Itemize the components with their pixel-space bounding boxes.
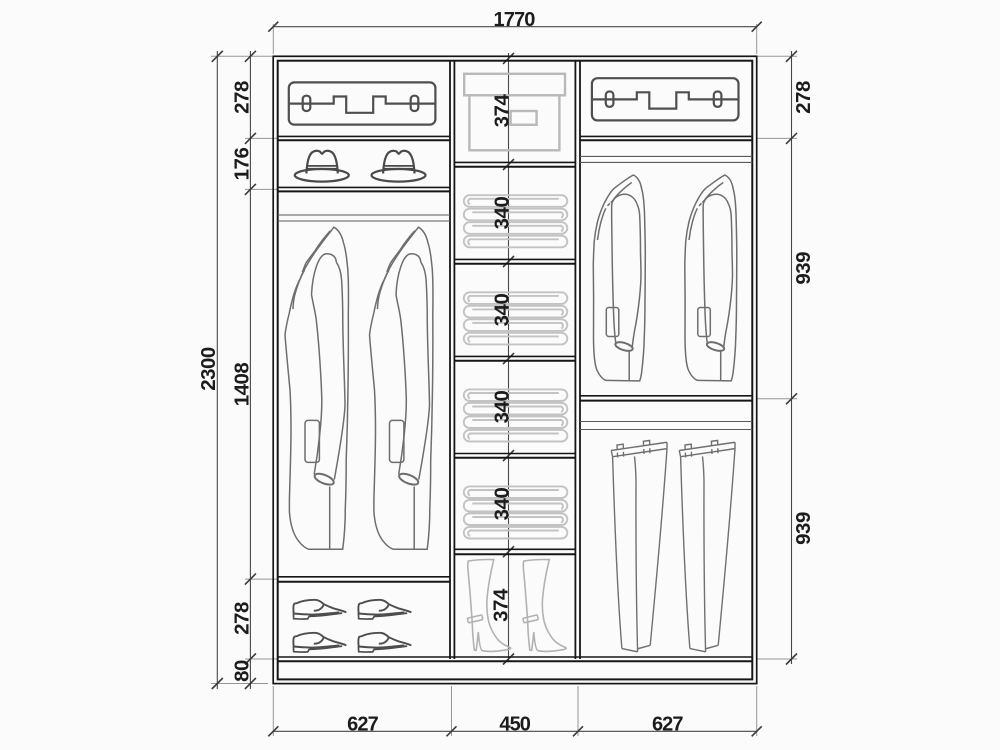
svg-text:278: 278 [231, 602, 254, 635]
svg-text:627: 627 [652, 713, 683, 735]
svg-text:2300: 2300 [197, 347, 220, 391]
svg-text:627: 627 [347, 713, 378, 735]
svg-text:340: 340 [490, 391, 513, 424]
svg-text:939: 939 [792, 252, 815, 285]
svg-text:340: 340 [490, 197, 513, 230]
svg-text:340: 340 [490, 294, 513, 327]
svg-text:1770: 1770 [494, 9, 536, 31]
svg-text:340: 340 [490, 488, 513, 521]
svg-text:1408: 1408 [231, 363, 254, 407]
svg-text:939: 939 [792, 512, 815, 545]
svg-text:450: 450 [499, 713, 530, 735]
svg-text:278: 278 [792, 81, 815, 114]
svg-text:374: 374 [490, 588, 513, 622]
svg-text:278: 278 [231, 81, 254, 114]
svg-text:80: 80 [231, 660, 254, 682]
svg-text:374: 374 [490, 94, 513, 128]
svg-text:176: 176 [231, 148, 254, 181]
